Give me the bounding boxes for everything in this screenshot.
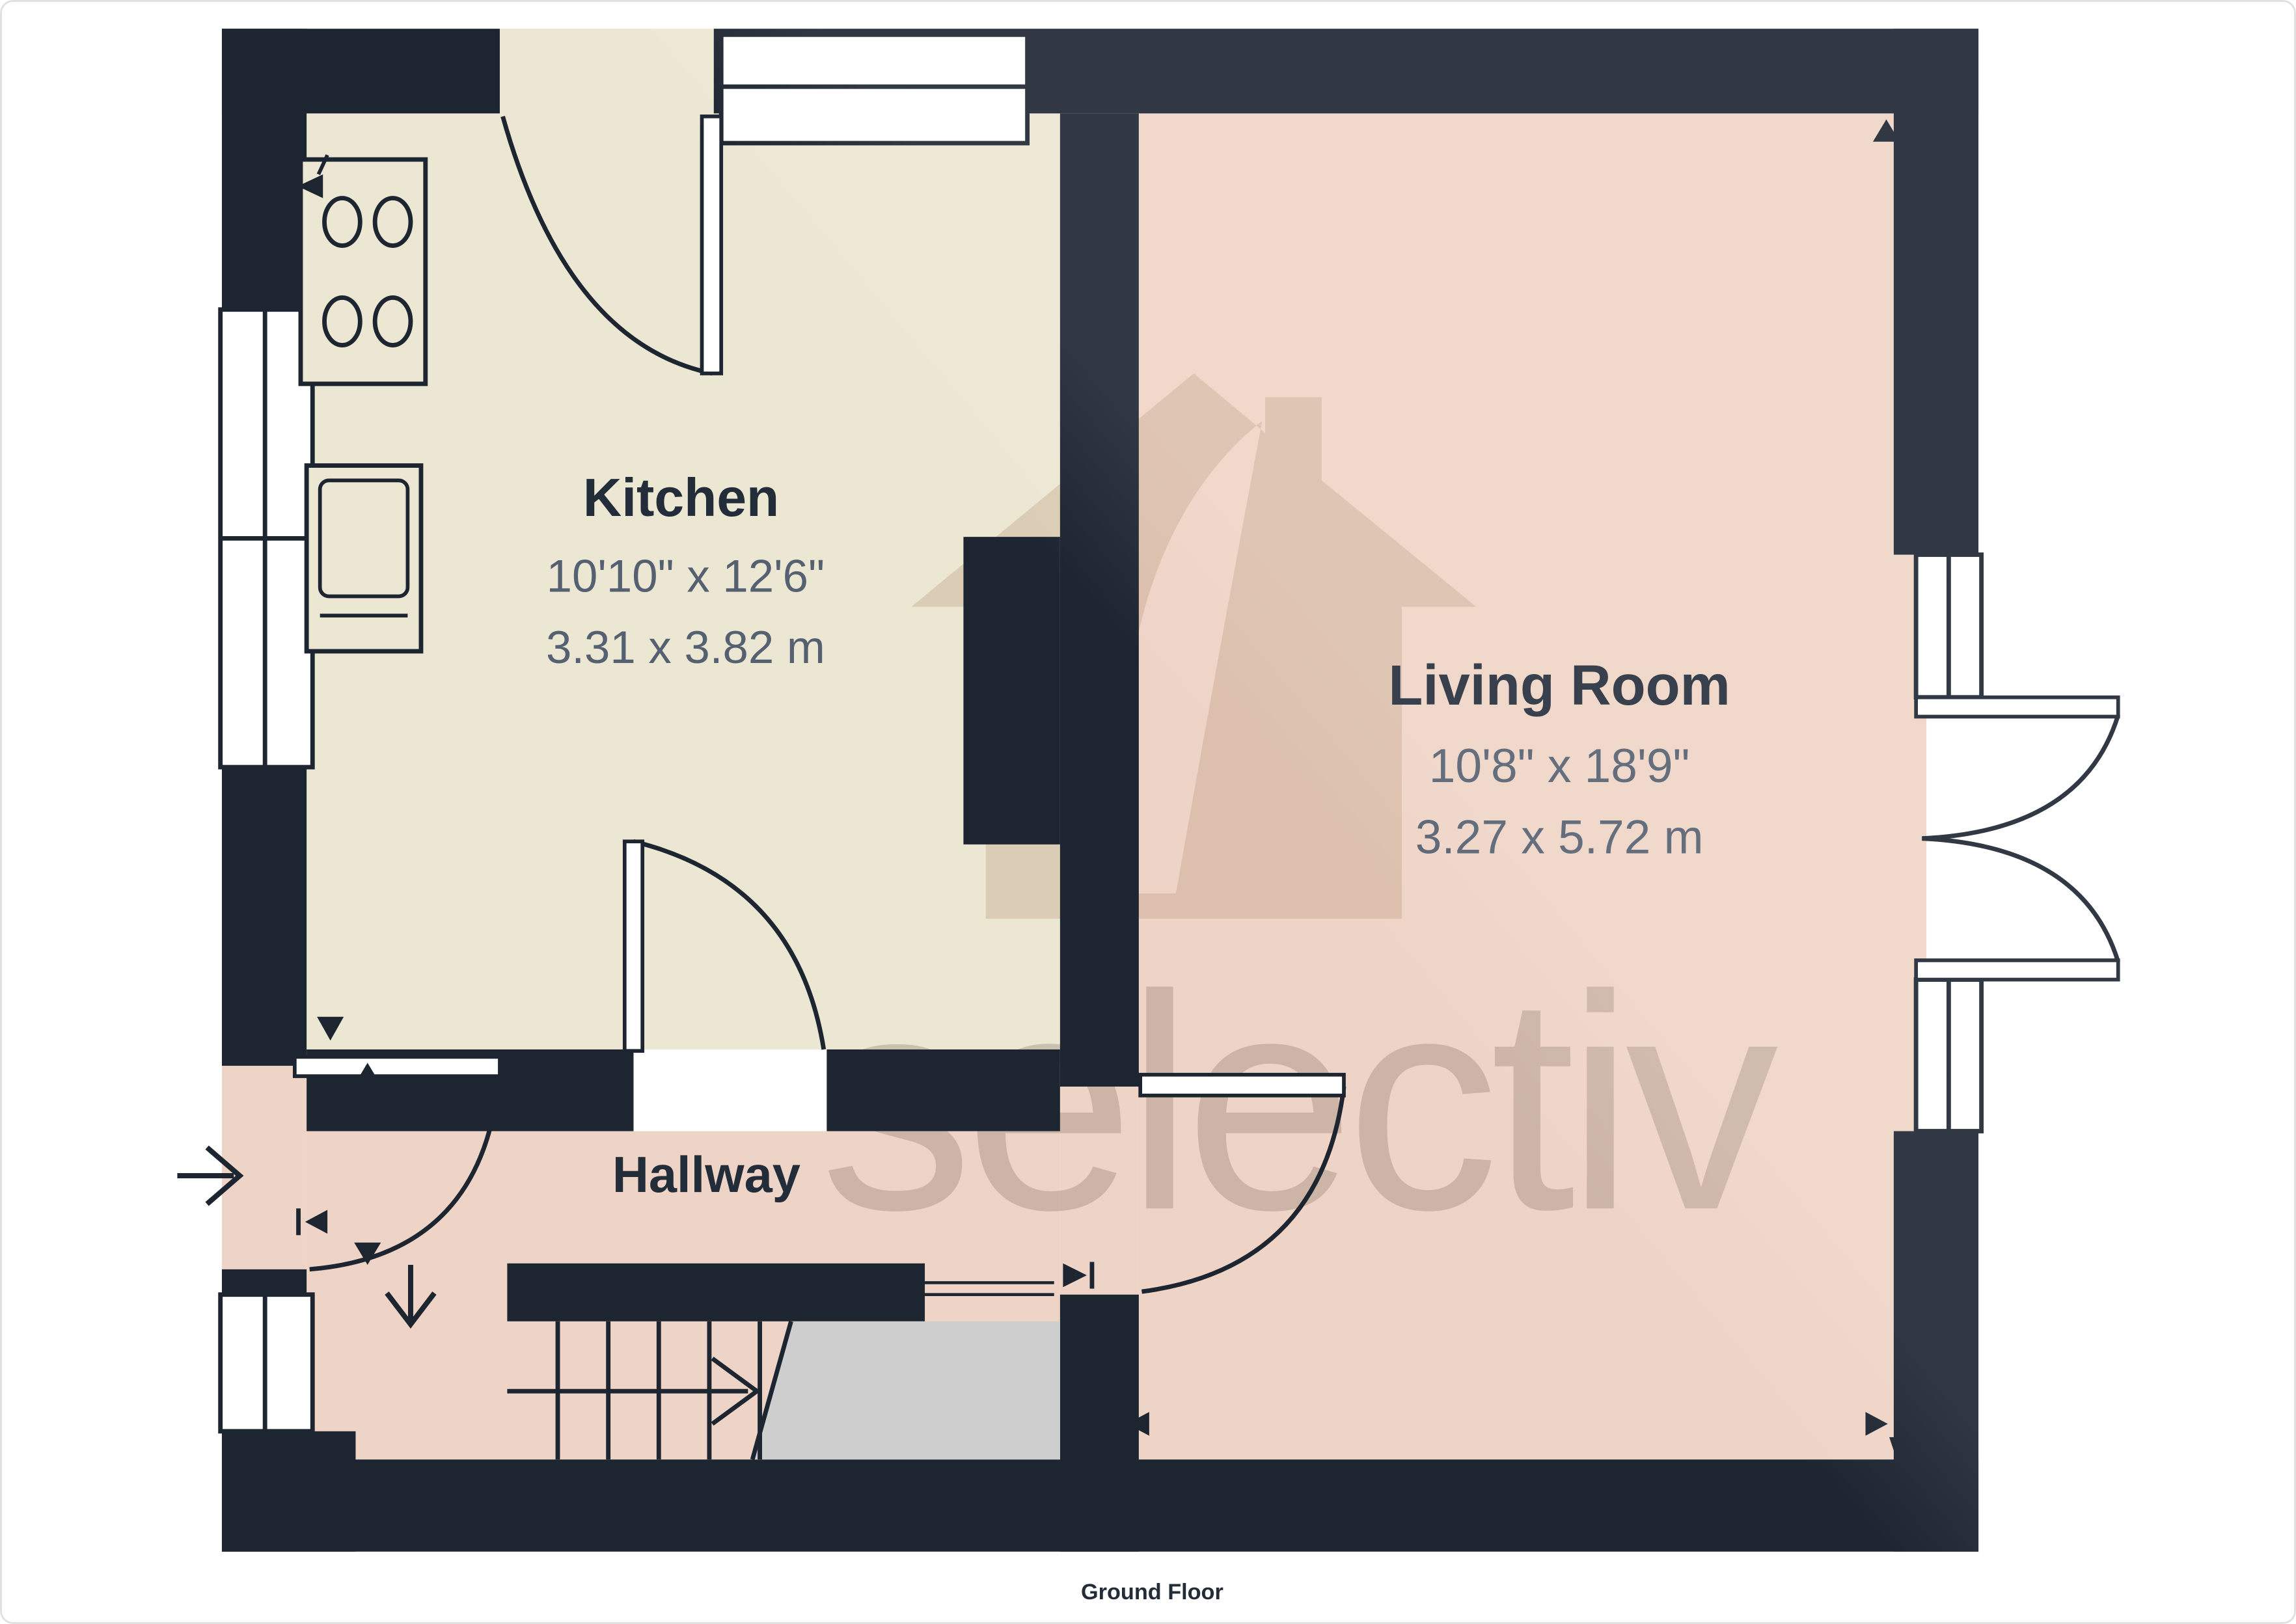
door-leaf <box>295 1057 500 1076</box>
kitchen-label: Kitchen <box>583 468 779 528</box>
kitchen-back-door-gap <box>500 29 714 118</box>
stairs-side-wall <box>507 1264 925 1321</box>
kitchen-top-window <box>721 34 1027 143</box>
door-leaf <box>1140 1075 1344 1096</box>
door-leaf-top <box>1916 697 2118 717</box>
dividing-wall-upper <box>1060 113 1139 1087</box>
floor-title: Ground Floor <box>1081 1580 1223 1604</box>
right-wall-upper <box>1894 29 1978 554</box>
chimney-breast <box>963 537 1059 845</box>
bay-window-lower <box>1916 980 1981 1131</box>
door-leaf <box>702 116 722 373</box>
door-swing-arc-bottom <box>1922 839 2118 962</box>
living-room-dims-imperial: 10'8" x 18'9" <box>1429 740 1690 792</box>
floorplan-drawing: selectiv <box>2 2 2296 1624</box>
living-room-label: Living Room <box>1388 654 1730 717</box>
front-door-gap <box>222 1066 307 1269</box>
hallway-left-window <box>221 1295 313 1431</box>
hallway-label: Hallway <box>612 1147 800 1203</box>
bay-window-upper <box>1916 555 1981 697</box>
sink-icon <box>307 466 421 651</box>
door-leaf-bottom <box>1916 960 2118 980</box>
dividing-wall-lower <box>1060 1295 1139 1552</box>
door-swing-arc-top <box>1922 715 2118 839</box>
living-room-dims-metric: 3.27 x 5.72 m <box>1415 811 1704 864</box>
french-doors <box>1916 697 2118 980</box>
floorplan-page: selectiv <box>0 0 2296 1624</box>
kitchen-dims-imperial: 10'10" x 12'6" <box>547 550 825 602</box>
right-wall-lower <box>1894 1131 1978 1552</box>
kitchen-bottom-wall-right <box>827 1049 1060 1131</box>
stairs-landing <box>752 1321 1060 1459</box>
door-leaf <box>625 841 642 1051</box>
kitchen-dims-metric: 3.31 x 3.82 m <box>546 621 825 673</box>
